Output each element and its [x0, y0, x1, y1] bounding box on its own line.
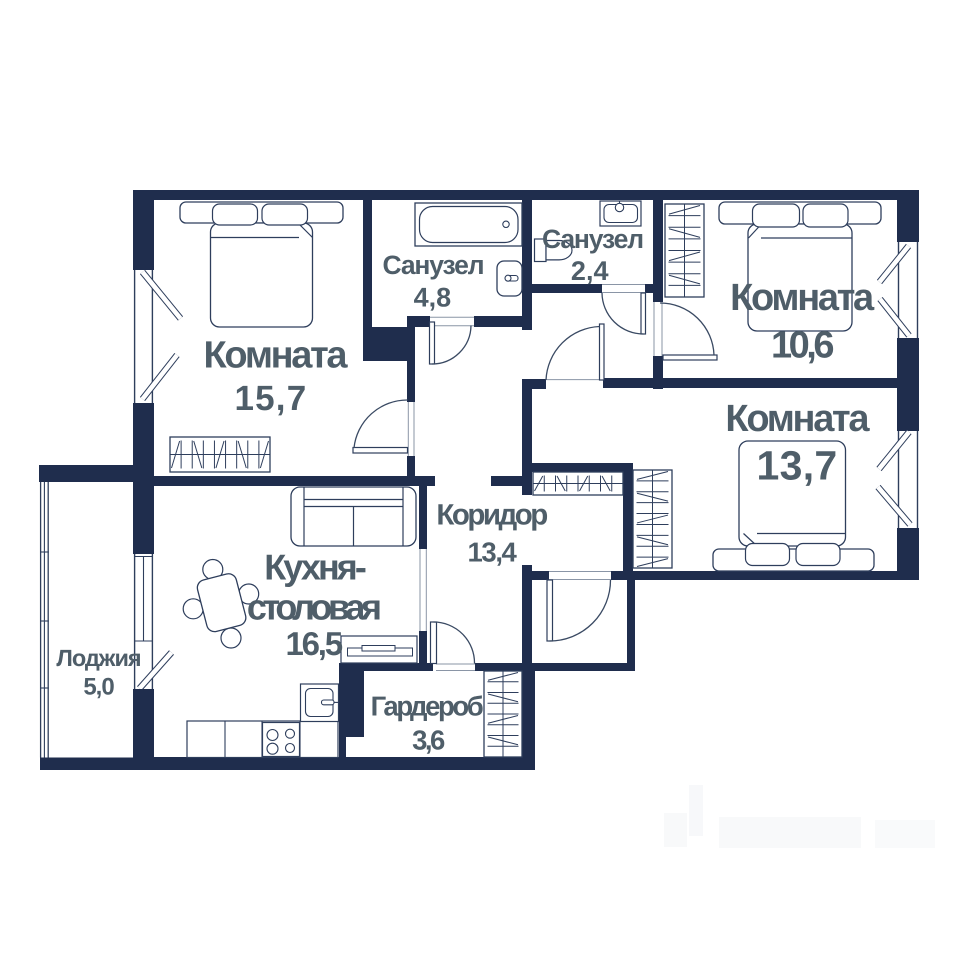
- svg-text:13,7: 13,7: [757, 442, 838, 488]
- svg-text:Лоджия: Лоджия: [56, 645, 141, 671]
- svg-text:Кухня-: Кухня-: [264, 547, 366, 588]
- svg-text:Коридор: Коридор: [436, 498, 547, 531]
- svg-text:Комната: Комната: [730, 277, 875, 319]
- svg-text:Санузел: Санузел: [542, 224, 643, 254]
- svg-text:3,6: 3,6: [412, 725, 445, 756]
- svg-text:2,4: 2,4: [571, 256, 609, 286]
- svg-text:5,0: 5,0: [83, 674, 114, 701]
- svg-text:Комната: Комната: [725, 398, 870, 440]
- svg-text:Санузел: Санузел: [383, 250, 484, 280]
- svg-text:16,5: 16,5: [285, 625, 342, 662]
- svg-text:4,8: 4,8: [414, 283, 452, 313]
- svg-text:10,6: 10,6: [771, 325, 833, 367]
- svg-text:Гардероб: Гардероб: [371, 691, 483, 722]
- svg-text:15,7: 15,7: [234, 379, 307, 418]
- svg-text:Комната: Комната: [204, 335, 349, 377]
- svg-text:столовая: столовая: [247, 586, 380, 627]
- svg-text:13,4: 13,4: [468, 537, 518, 568]
